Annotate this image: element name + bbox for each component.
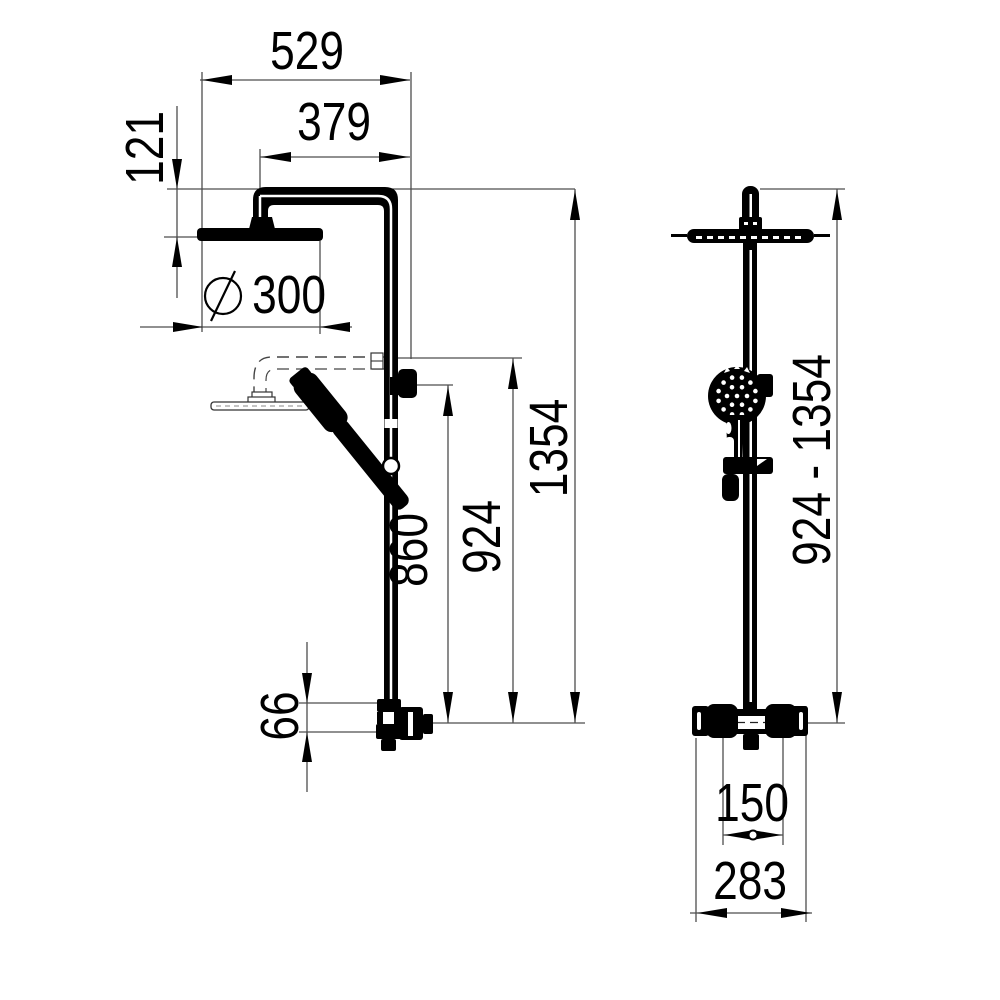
head-mount <box>249 217 275 229</box>
dim-text-283: 283 <box>713 851 787 911</box>
head-collar <box>739 217 762 231</box>
technical-drawing-page: 529 379 300 121 860 924 1354 66 924 - 13… <box>0 0 1000 1000</box>
outlet-nut <box>423 714 433 734</box>
mixer-valve-front <box>692 704 808 750</box>
slider-pivot <box>383 458 399 474</box>
hand-shower-front <box>708 365 773 501</box>
overhead-shower-front <box>687 229 814 243</box>
dim-text-924: 924 <box>452 500 512 574</box>
diverter-knob-side <box>398 369 417 398</box>
valve-knob-left <box>706 704 738 738</box>
handle-grip-end <box>722 474 739 501</box>
dim-text-66: 66 <box>250 691 310 740</box>
dim-text-860: 860 <box>379 513 439 587</box>
diameter-symbol-icon <box>205 271 241 321</box>
mixer-valve-side <box>376 699 433 751</box>
dim-text-379: 379 <box>297 92 371 152</box>
pipe-joint <box>385 419 398 428</box>
valve-outlet-front <box>743 734 759 750</box>
shower-column-drawing: 529 379 300 121 860 924 1354 66 924 - 13… <box>0 0 1000 1000</box>
dim-text-121: 121 <box>115 111 175 185</box>
dim-text-1354: 1354 <box>519 399 579 497</box>
dim-text-150: 150 <box>715 773 789 833</box>
dim-text-height-range: 924 - 1354 <box>782 354 842 566</box>
dim-text-529: 529 <box>270 21 344 81</box>
overhead-shower-side <box>197 228 323 241</box>
dim-text-300: 300 <box>252 265 326 325</box>
